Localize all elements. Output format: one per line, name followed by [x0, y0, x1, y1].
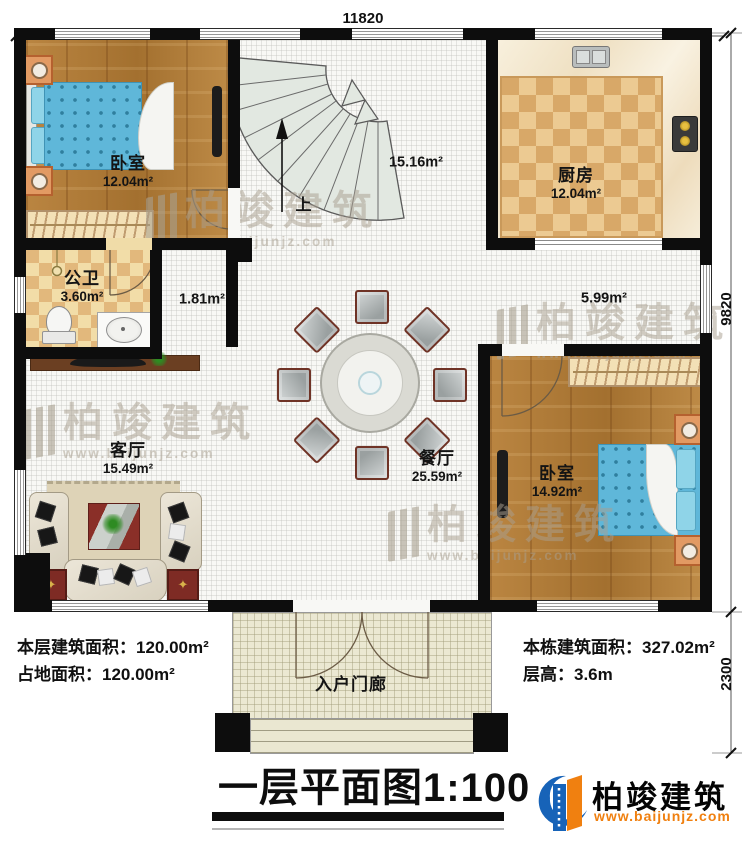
drawing-title-name: 一层平面图: [218, 766, 423, 810]
label-passage-area: 5.99m²: [581, 290, 627, 307]
title-underline-thick: [212, 812, 504, 821]
dining-chair: [277, 368, 311, 402]
window-top-kitchen: [535, 28, 662, 40]
dim-main-height: 9820: [718, 279, 736, 339]
bed2-nightstand: [674, 414, 703, 445]
label-kitchen: 厨房 12.04m²: [551, 166, 601, 202]
label-porch: 入户门廊: [315, 675, 387, 695]
stat-land-area: 占地面积：120.00m²: [17, 660, 175, 685]
corner-block-sw: [14, 553, 50, 612]
wall-bathroom-right: [150, 250, 162, 347]
sofa-pillow-white: [97, 568, 115, 586]
door-gap-bathroom: [106, 238, 152, 250]
bed1-nightstand: [24, 55, 53, 85]
window-top-bedroom1: [55, 28, 150, 40]
stat-building-area: 本栋建筑面积：327.02m²: [523, 633, 715, 658]
label-corridor-area: 1.81m²: [179, 291, 225, 308]
burner: [680, 121, 690, 131]
kitchen-sink: [572, 46, 610, 68]
drawing-title-scale: 1:100: [423, 766, 530, 810]
sofa-pillow-white: [168, 523, 186, 541]
dim-top-width: 11820: [330, 10, 396, 27]
label-stairs-up: 上: [295, 197, 312, 215]
stat-story-height: 层高：3.6m: [523, 660, 613, 685]
window-top-stairs: [200, 28, 300, 40]
window-bottom-bedroom2: [537, 600, 658, 612]
bedroom2-wardrobe: [568, 357, 702, 387]
burner: [680, 136, 690, 146]
wall-corridor-right: [226, 250, 238, 347]
title-underline-thin: [212, 828, 504, 830]
label-bedroom1: 卧室 12.04m²: [103, 154, 153, 190]
label-bedroom2: 卧室 14.92m²: [532, 464, 582, 500]
brand-url: www.baijunjz.com: [594, 808, 731, 824]
label-dining-room: 餐厅 25.59m²: [412, 449, 462, 485]
stat-land-area-label: 占地面积：: [17, 665, 102, 684]
dining-chair: [433, 368, 467, 402]
door-gap-bedroom2: [502, 344, 564, 356]
coffee-table-plant: [102, 514, 124, 534]
door-gap-bedroom1: [228, 188, 240, 238]
bed1-nightstand: [24, 166, 53, 196]
bed2-pillow: [676, 449, 696, 489]
porch-steps: [250, 718, 474, 754]
wall-bedroom1-right: [228, 40, 240, 188]
stat-building-area-value: 327.02m²: [642, 638, 715, 657]
window-left-bathroom: [14, 277, 26, 313]
bedroom1-wardrobe: [26, 210, 154, 241]
stat-story-height-label: 层高：: [523, 665, 574, 684]
kitchen-sliding-door: [535, 238, 662, 250]
label-stair-hall-area: 15.16m²: [389, 154, 443, 171]
wall-kitchen-left: [486, 28, 498, 250]
window-right-passage: [700, 265, 712, 333]
stat-building-area-label: 本栋建筑面积：: [523, 638, 642, 657]
stat-floor-area-label: 本层建筑面积：: [17, 638, 136, 657]
door-gap-entrance: [293, 600, 430, 612]
window-bottom-living: [52, 600, 208, 612]
dining-chair: [355, 446, 389, 480]
kitchen-stove: [672, 116, 698, 152]
stat-floor-area: 本层建筑面积：120.00m²: [17, 633, 209, 658]
kitchen-rug: [500, 76, 663, 238]
sink-basin: [592, 50, 606, 64]
bed2-pillow: [676, 491, 696, 531]
bed2-nightstand: [674, 535, 703, 566]
dining-chair: [355, 290, 389, 324]
window-top-hall: [352, 28, 463, 40]
porch-column: [473, 713, 508, 752]
porch-column: [215, 713, 250, 752]
bedroom2-tv: [497, 450, 508, 518]
wall-bathroom-bottom: [14, 347, 162, 359]
dining-table-hub: [358, 371, 382, 395]
floor-plan-page: ✦ ✦: [0, 0, 750, 842]
wall-bedroom2-left: [478, 344, 490, 612]
drawing-title: 一层平面图1:100: [218, 755, 530, 813]
label-living-room: 客厅 15.49m²: [103, 441, 153, 477]
stat-land-area-value: 120.00m²: [102, 665, 175, 684]
porch-floor: [232, 612, 492, 719]
stat-story-height-value: 3.6m: [574, 665, 613, 684]
label-bathroom: 公卫 3.60m²: [61, 269, 104, 305]
bath-sink-drain: [121, 327, 125, 331]
brand-logo-icon: [536, 764, 590, 838]
bedroom1-tv: [212, 86, 222, 157]
sink-basin: [576, 50, 590, 64]
dim-porch-height: 2300: [718, 644, 736, 704]
side-table: ✦: [167, 569, 199, 601]
stat-floor-area-value: 120.00m²: [136, 638, 209, 657]
toilet-tank: [42, 331, 76, 344]
window-left-living: [14, 470, 26, 555]
